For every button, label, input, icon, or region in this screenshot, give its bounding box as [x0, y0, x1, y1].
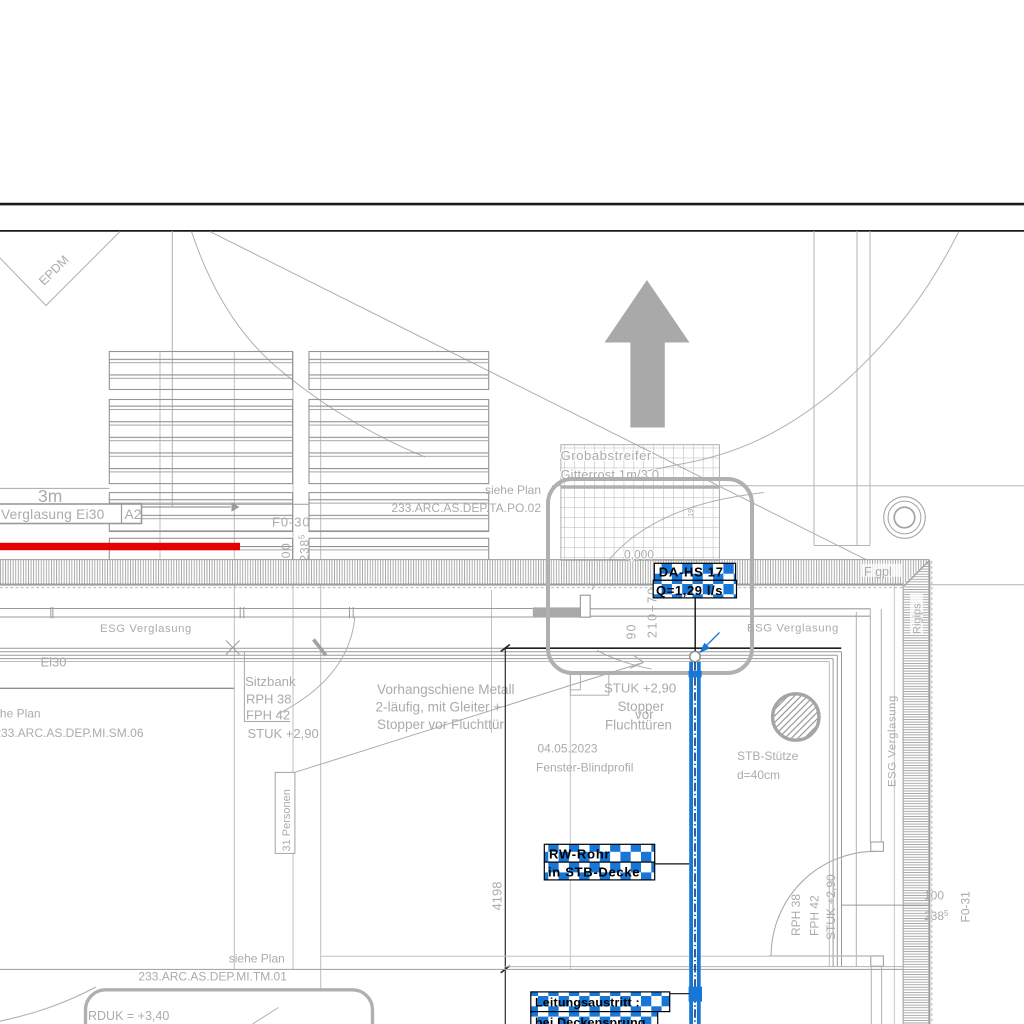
- svg-text:100: 100: [924, 889, 944, 903]
- svg-text:31 Personen: 31 Personen: [281, 789, 293, 851]
- svg-text:RDUK = +3,40: RDUK = +3,40: [88, 1009, 169, 1023]
- svg-text:d=40cm: d=40cm: [737, 768, 780, 782]
- svg-text:STUK +2,90: STUK +2,90: [604, 681, 676, 696]
- svg-text:Sitzbank: Sitzbank: [245, 674, 296, 689]
- svg-text:Fenster-Blindprofil: Fenster-Blindprofil: [536, 761, 633, 775]
- svg-text:2-läufig, mit Gleiter +: 2-läufig, mit Gleiter +: [376, 700, 502, 715]
- svg-text:233.ARC.AS.DEP.MI.TM.01: 233.ARC.AS.DEP.MI.TM.01: [138, 970, 287, 984]
- svg-text:DA-HS 17: DA-HS 17: [659, 564, 724, 579]
- svg-text:90: 90: [625, 624, 639, 640]
- svg-text:EPDM: EPDM: [36, 253, 71, 288]
- svg-text:233.ARC.AS.DEP.MI.SM.06: 233.ARC.AS.DEP.MI.SM.06: [0, 726, 144, 740]
- svg-text:A2: A2: [125, 507, 142, 522]
- svg-text:bei Deckensprung: bei Deckensprung: [535, 1016, 646, 1024]
- svg-text:in STB-Decke: in STB-Decke: [548, 864, 640, 879]
- svg-text:0,000: 0,000: [624, 548, 654, 562]
- svg-text:Grobabstreifer: Grobabstreifer: [561, 448, 652, 463]
- svg-text:Vorhangschiene Metall: Vorhangschiene Metall: [377, 682, 515, 697]
- svg-text:F gpl: F gpl: [864, 565, 892, 579]
- svg-text:233.ARC.AS.DEP.TA.PO.02: 233.ARC.AS.DEP.TA.PO.02: [391, 501, 541, 515]
- svg-text:F0-31: F0-31: [959, 891, 973, 923]
- svg-text:2385: 2385: [924, 909, 949, 923]
- svg-text:Stopper vor Fluchttür: Stopper vor Fluchttür: [377, 717, 504, 732]
- svg-text:RPH 38: RPH 38: [789, 894, 803, 936]
- svg-text:FPH 42: FPH 42: [246, 707, 290, 722]
- svg-text:Verglasung Ei30: Verglasung Ei30: [1, 507, 105, 522]
- svg-text:STUK +2,90: STUK +2,90: [248, 726, 319, 741]
- svg-text:STUK +2,90: STUK +2,90: [824, 874, 838, 940]
- svg-text:RPH 38: RPH 38: [246, 692, 292, 707]
- svg-text:4198: 4198: [490, 882, 505, 911]
- svg-text:STB-Stütze: STB-Stütze: [737, 749, 799, 763]
- svg-text:ESG Verglasung: ESG Verglasung: [747, 623, 839, 635]
- svg-text:siehe Plan: siehe Plan: [0, 707, 41, 721]
- svg-text:RW-Rohr: RW-Rohr: [549, 846, 610, 861]
- svg-text:siehe Plan: siehe Plan: [229, 952, 285, 966]
- svg-text:Rigips: Rigips: [912, 603, 924, 634]
- svg-text:Leitungsaustritt :: Leitungsaustritt :: [535, 996, 640, 1010]
- svg-text:04.05.2023: 04.05.2023: [538, 742, 598, 756]
- svg-text:siehe Plan: siehe Plan: [485, 483, 541, 497]
- svg-text:19: 19: [686, 509, 695, 517]
- svg-text:F0-30: F0-30: [272, 515, 310, 530]
- svg-text:ESG Verglasung: ESG Verglasung: [887, 695, 899, 787]
- svg-text:FPH 42: FPH 42: [808, 895, 822, 936]
- svg-text:Ei30: Ei30: [41, 655, 67, 670]
- svg-text:Fluchttüren: Fluchttüren: [605, 718, 672, 733]
- svg-text:Q=1,29 l/s: Q=1,29 l/s: [656, 583, 723, 598]
- svg-text:3m: 3m: [38, 486, 62, 506]
- svg-text:ESG Verglasung: ESG Verglasung: [100, 623, 192, 635]
